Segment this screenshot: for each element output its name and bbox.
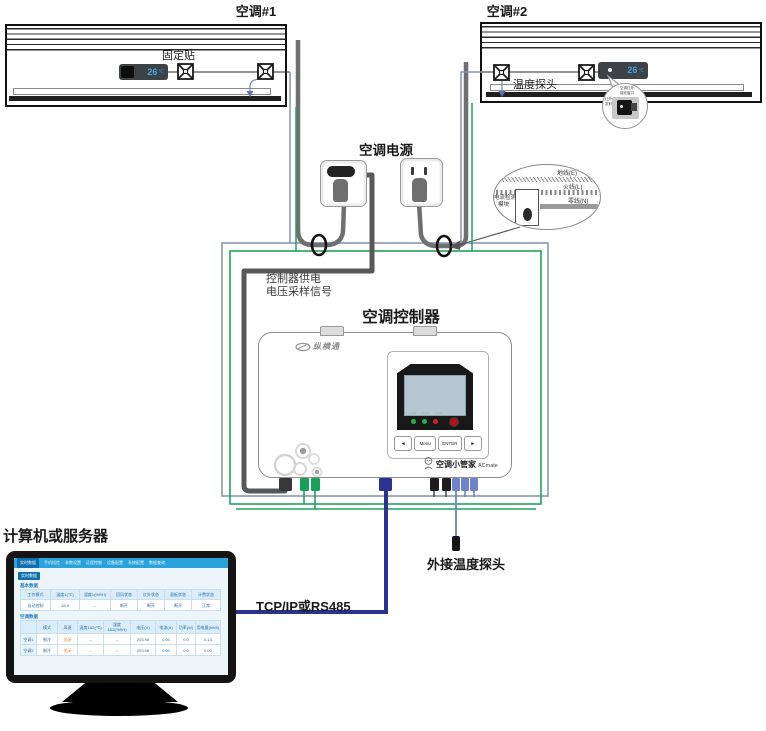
power-wiring-callout: 地线(E) 火线(L) 零线(N) 电流检测 模块 <box>493 164 601 230</box>
ground-label: 地线(E) <box>557 168 577 177</box>
ir-emitter-tab <box>631 103 637 111</box>
wiring-diagram: 空调#1 26 ℃ 固定贴 空调#2 26 ℃ 温度探头 空调电源 控制器供电 <box>0 0 766 731</box>
ir-callout-text-top2: 接收窗口 <box>620 92 634 96</box>
ac1-probe-arrow <box>247 91 254 97</box>
clip-icon <box>178 64 193 79</box>
neutral-label: 零线(N) <box>568 196 588 205</box>
module-label-2: 模块 <box>498 200 509 208</box>
wire-layer-top <box>0 0 766 731</box>
ac1-probe-wire <box>250 79 259 91</box>
ir-callout-bubble: 空调红外 接收窗口 红外 发射头 <box>602 83 648 129</box>
module-oval <box>523 208 532 221</box>
ac2-probe-arrow <box>499 91 506 97</box>
clip-icon <box>494 65 509 80</box>
ir-emitter-head <box>617 100 632 115</box>
current-module <box>515 189 539 226</box>
ir-emitter-dot <box>620 105 623 108</box>
clip-icon <box>579 65 594 80</box>
live-label: 火线(L) <box>563 182 582 191</box>
ground-wire-band <box>496 177 600 182</box>
clip-icon <box>258 64 273 79</box>
